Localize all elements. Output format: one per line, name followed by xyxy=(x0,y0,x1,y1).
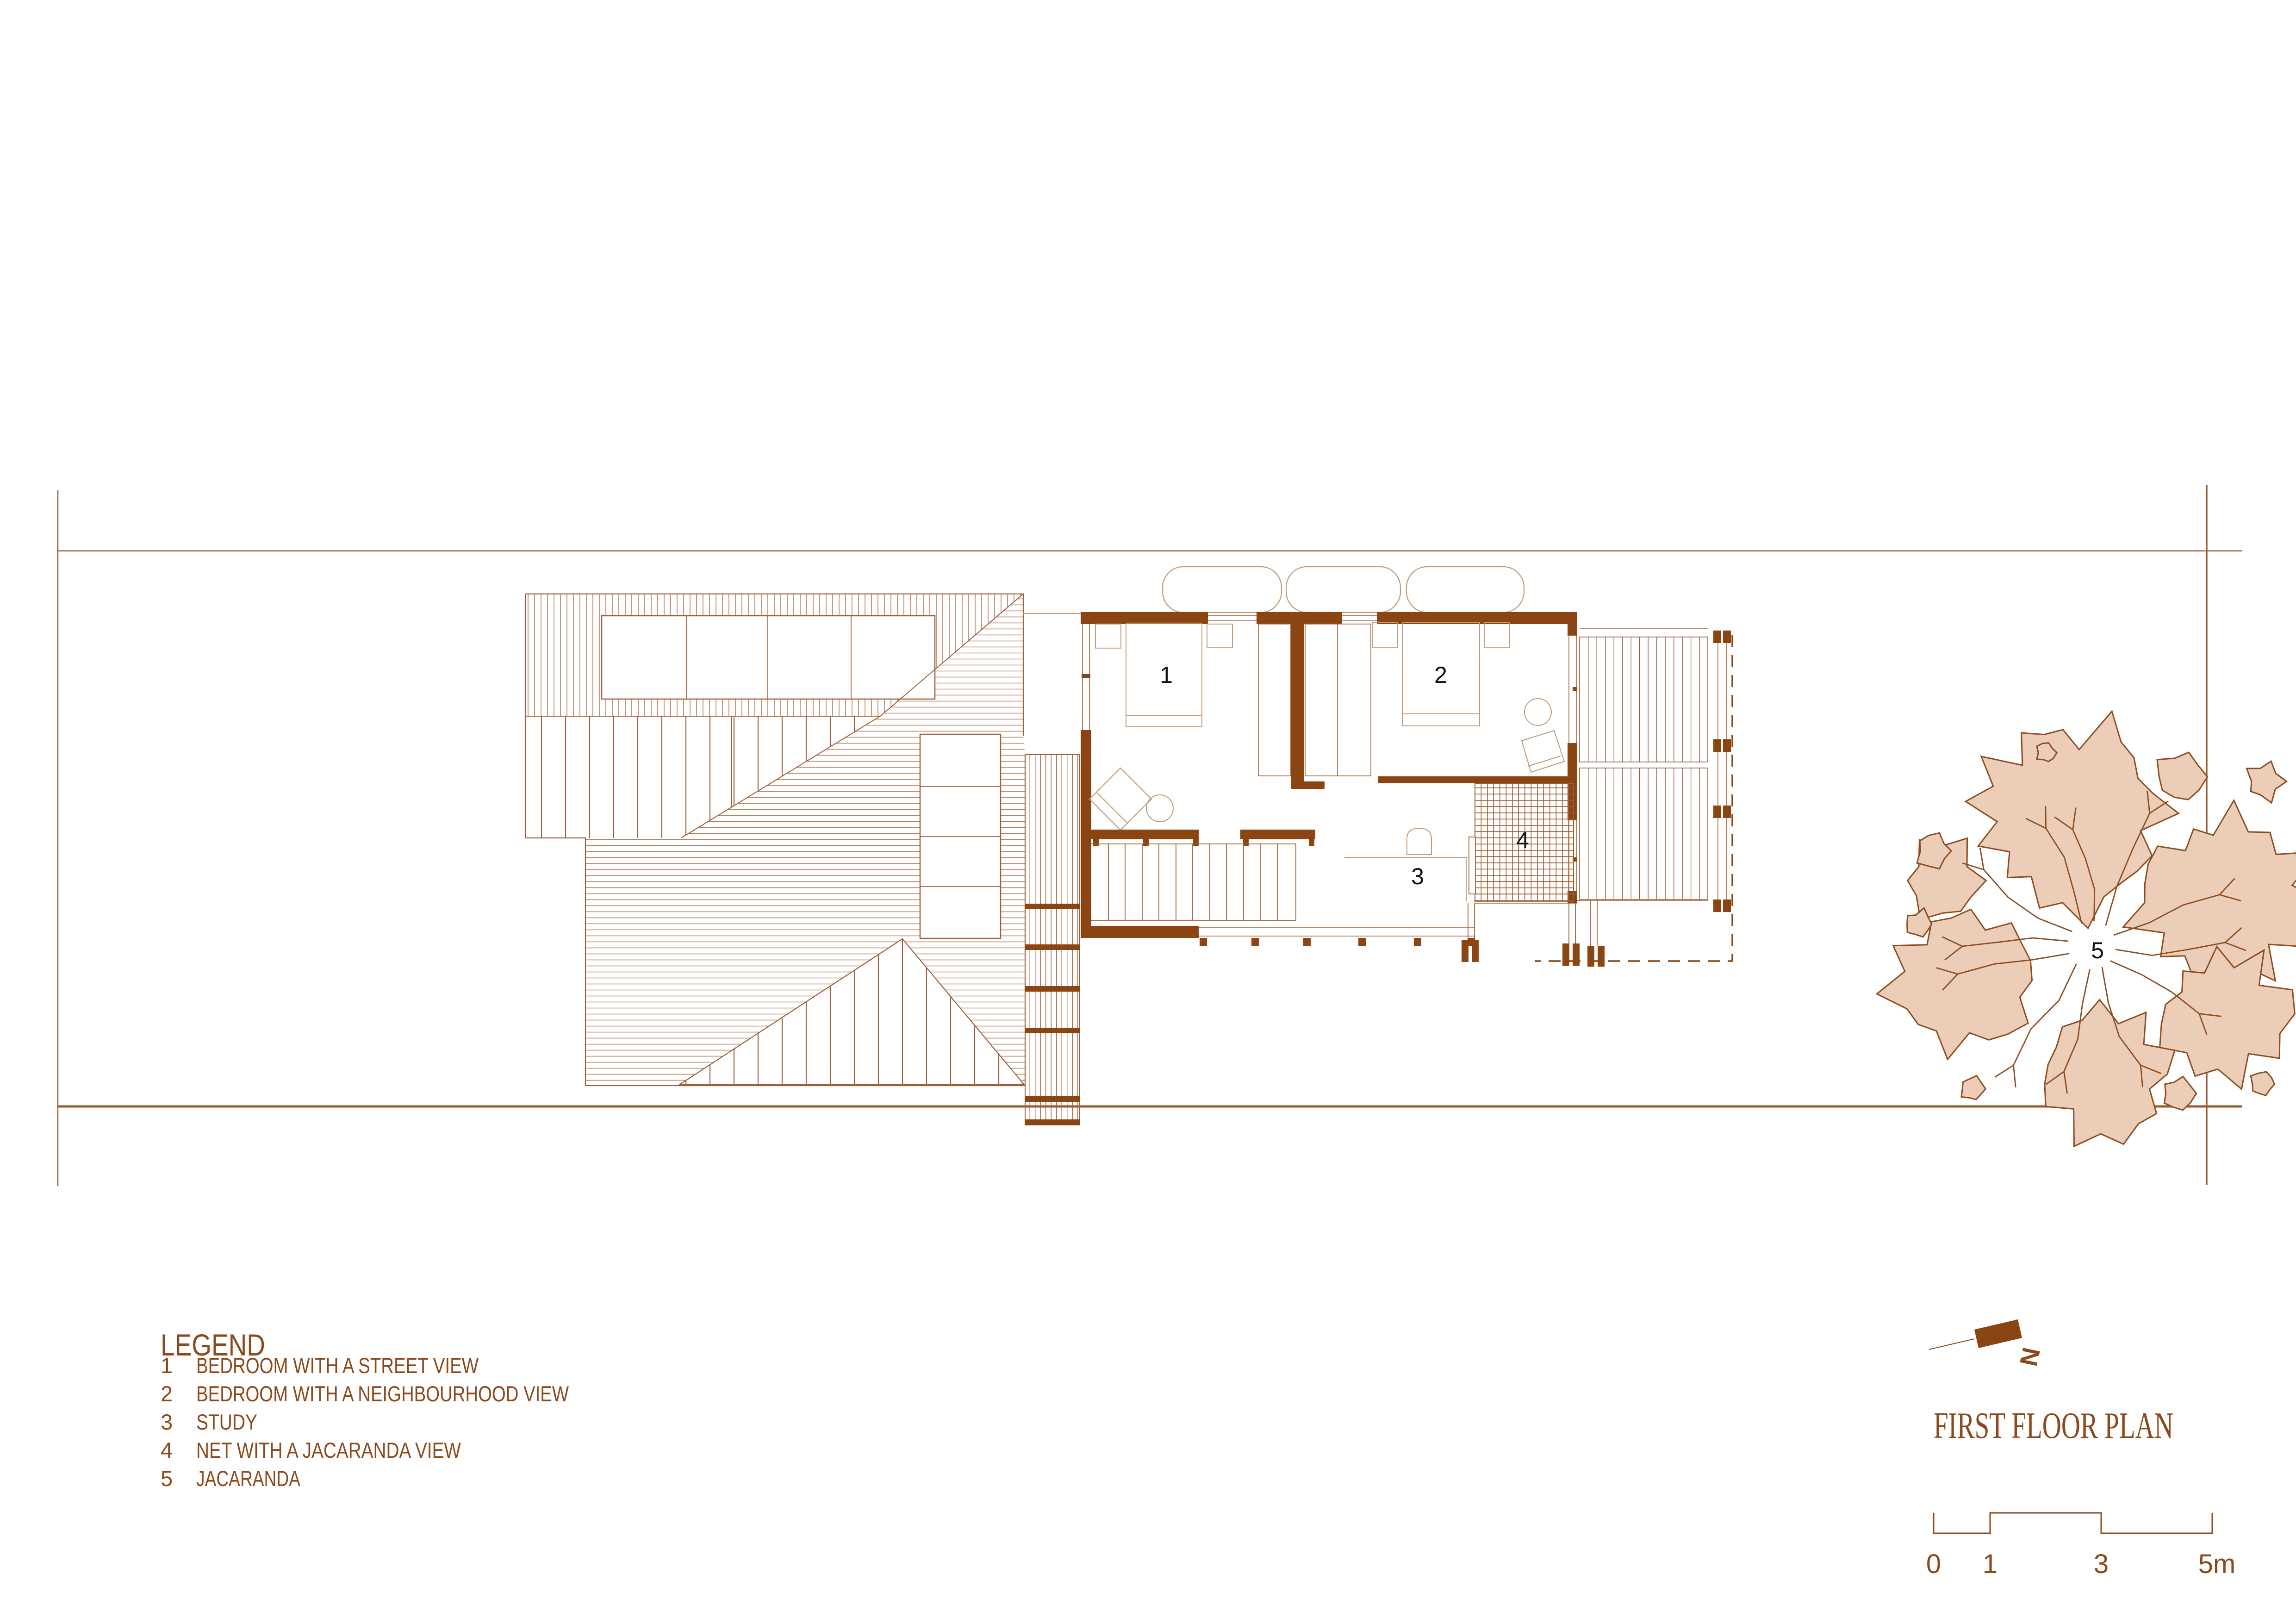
label-net: 4 xyxy=(1516,827,1529,853)
bedside-table xyxy=(1372,623,1398,647)
deck-railing xyxy=(1718,643,1726,899)
study-furniture xyxy=(1344,828,1466,902)
north-label: N xyxy=(2014,1345,2045,1369)
window-top-2 xyxy=(1342,616,1377,621)
canopy-clump xyxy=(2157,752,2208,800)
window-top-1 xyxy=(1208,616,1257,621)
canopy-clump xyxy=(1961,1076,1985,1100)
wardrobe-2 xyxy=(1305,624,1371,776)
legend-label-5: JACARANDA xyxy=(196,1466,301,1491)
roof-plan xyxy=(525,594,1081,1125)
mullion-left xyxy=(1082,674,1090,678)
chair-2 xyxy=(1522,731,1564,772)
east-deck xyxy=(1577,629,1731,912)
chair-1 xyxy=(1089,768,1151,830)
legend-num-5: 5 xyxy=(161,1466,173,1491)
awning-box xyxy=(1406,567,1524,612)
awning-box xyxy=(1286,567,1400,612)
mullion-right-1 xyxy=(1573,687,1577,691)
legend: LEGEND 1 BEDROOM WITH A STREET VIEW 2 BE… xyxy=(161,1328,569,1491)
north-arrow: N xyxy=(1929,1319,2045,1368)
drawing-title: FIRST FLOOR PLAN xyxy=(1934,1405,2173,1446)
bedroom1-furniture xyxy=(1089,623,1232,830)
canopy-clump xyxy=(1877,909,2032,1059)
legend-label-3: STUDY xyxy=(196,1410,257,1434)
desk xyxy=(1344,857,1466,902)
deck-lower xyxy=(1580,768,1708,899)
staircase xyxy=(1091,830,1315,920)
desk-chair xyxy=(1407,828,1431,855)
canopy-clump xyxy=(2164,1076,2196,1110)
floor-plan-canvas: 1 2 3 4 5 LEGEND 1 BEDROOM WITH A STREET… xyxy=(0,0,2296,1624)
pouf-2 xyxy=(1524,699,1551,725)
canopy-clump xyxy=(2246,761,2286,803)
roof-skylight-upper xyxy=(602,616,935,699)
legend-num-3: 3 xyxy=(161,1410,173,1434)
scale-tick-3: 3 xyxy=(2094,1549,2109,1579)
scale-bar: 0 1 3 5m xyxy=(1926,1513,2235,1579)
legend-num-4: 4 xyxy=(161,1438,173,1462)
legend-label-1: BEDROOM WITH A STREET VIEW xyxy=(196,1353,479,1378)
legend-label-2: BEDROOM WITH A NEIGHBOURHOOD VIEW xyxy=(196,1381,569,1406)
title-block: N FIRST FLOOR PLAN 0 1 3 5m xyxy=(1926,1319,2235,1579)
stair-treads xyxy=(1108,844,1277,920)
stair-balustrade-1 xyxy=(1091,830,1199,839)
roof-skylight-lower xyxy=(920,734,1001,938)
wall-top-1 xyxy=(1081,612,1208,624)
wall-between-bedrooms-foot xyxy=(1291,781,1325,789)
north-arrow-line xyxy=(1929,1339,1974,1349)
bedroom2-furniture xyxy=(1372,623,1564,772)
net-partition xyxy=(1469,837,1475,894)
jacaranda-canopy xyxy=(1877,711,2296,1146)
balustrade-feet xyxy=(1093,839,1314,846)
bedside-table xyxy=(1095,624,1121,648)
side-walkway-strip xyxy=(1025,755,1080,1125)
scale-bar-profile xyxy=(1934,1513,2212,1533)
scale-tick-0: 0 xyxy=(1926,1549,1941,1579)
wardrobe-1 xyxy=(1258,624,1290,776)
house-plan xyxy=(1081,567,1732,967)
wall-left xyxy=(1081,730,1091,938)
bedside-table xyxy=(1207,624,1232,647)
chair-1-back xyxy=(1096,792,1127,823)
stair-edges xyxy=(1091,844,1296,920)
label-bedroom-street: 1 xyxy=(1160,662,1173,688)
label-study: 3 xyxy=(1411,863,1424,889)
bedside-table xyxy=(1484,623,1510,647)
wall-top-2 xyxy=(1257,612,1342,624)
wardrobes xyxy=(1258,624,1371,776)
north-arrow-flag xyxy=(1974,1319,2022,1348)
label-jacaranda: 5 xyxy=(2091,937,2104,963)
wall-between-bedrooms xyxy=(1291,624,1304,781)
stair-balustrade-2 xyxy=(1240,830,1315,839)
awning-box xyxy=(1163,567,1282,612)
deck-posts xyxy=(1713,631,1731,912)
scale-tick-5m: 5m xyxy=(2198,1549,2236,1579)
canopy-clump xyxy=(2160,947,2295,1089)
south-posts xyxy=(1200,938,1475,946)
wall-bedroom2-study xyxy=(1378,776,1568,783)
wall-right-corner xyxy=(1568,612,1577,636)
deck-upper xyxy=(1580,637,1708,762)
legend-num-1: 1 xyxy=(161,1353,173,1378)
jacaranda-tree xyxy=(1877,711,2296,1146)
label-bedroom-neighbourhood: 2 xyxy=(1434,662,1447,688)
wall-bottom-left xyxy=(1081,926,1199,938)
pouf-1 xyxy=(1146,795,1173,822)
scale-tick-1: 1 xyxy=(1983,1549,1997,1579)
porch-post-feet xyxy=(1462,940,1605,967)
porch-post-lines xyxy=(1468,900,1597,946)
legend-label-4: NET WITH A JACARANDA VIEW xyxy=(196,1438,461,1462)
window-south xyxy=(1199,928,1475,936)
legend-num-2: 2 xyxy=(161,1381,173,1406)
street-awnings xyxy=(1163,567,1524,612)
canopy-clump xyxy=(2251,1072,2275,1095)
